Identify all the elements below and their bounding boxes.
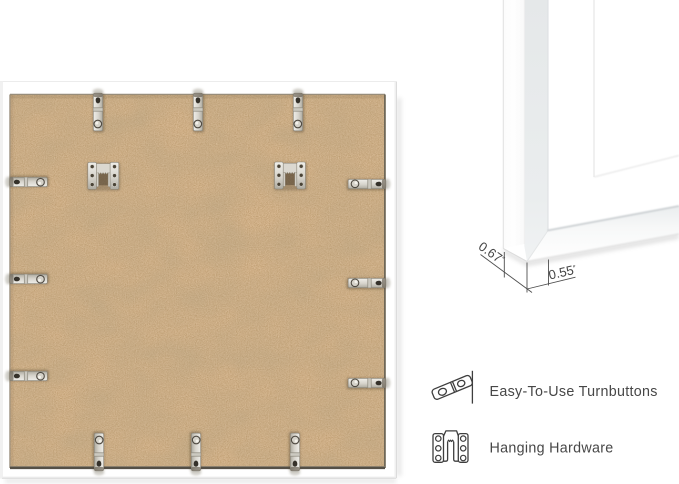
svg-text:Hanging Hardware: Hanging Hardware	[490, 441, 614, 457]
svg-text:Easy-To-Use Turnbuttons: Easy-To-Use Turnbuttons	[490, 384, 658, 400]
svg-text:0.55″: 0.55″	[547, 262, 578, 283]
